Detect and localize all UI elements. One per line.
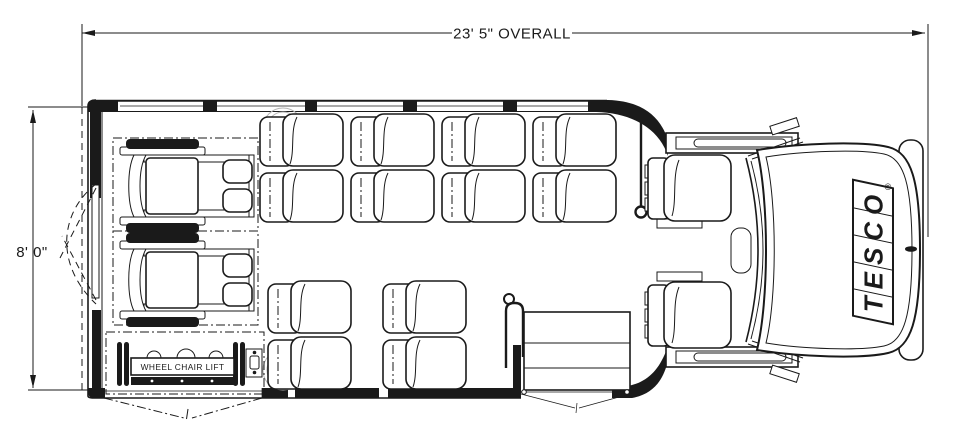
wheelchair-1 — [120, 139, 254, 233]
dimension-arrow-right — [912, 30, 925, 36]
entry-steps — [521, 312, 630, 394]
overall-length-label: 23' 5" OVERALL — [453, 26, 571, 43]
bus-floor-plan: 23' 5" OVERALL 8' 0" — [0, 0, 964, 425]
rear-door-open-panel — [92, 185, 99, 298]
driver-seat — [645, 282, 731, 348]
dimension-arrow-left — [82, 30, 95, 36]
dimension-arrow-down — [30, 375, 36, 388]
front-passenger-seat — [645, 155, 731, 221]
dimension-arrow-up — [30, 110, 36, 123]
floor-plan-drawing: 23' 5" OVERALL 8' 0" — [0, 0, 964, 425]
rear-doors — [60, 103, 101, 390]
seat-row-top-2 — [351, 114, 434, 222]
wheelchair-lift: WHEEL CHAIR LIFT — [106, 332, 264, 394]
seat-row-top-1 — [260, 114, 343, 222]
seat-pedestal-driver — [657, 272, 702, 281]
wheelchair-2 — [120, 233, 254, 327]
cab: TESCO ® — [645, 118, 923, 383]
overall-width-label: 8' 0" — [16, 244, 48, 261]
seat-row-top-3 — [442, 114, 525, 222]
registered-trademark: ® — [885, 182, 892, 192]
brand-name: TESCO — [859, 188, 889, 313]
hood — [757, 143, 920, 356]
seat-row-bottom-2 — [383, 281, 466, 389]
seat-row-top-4 — [533, 114, 616, 222]
width-dimension: 8' 0" — [16, 107, 90, 390]
center-console — [731, 228, 751, 273]
tesco-logo: TESCO ® — [853, 180, 893, 325]
wheelchair-lift-label: WHEEL CHAIR LIFT — [141, 362, 225, 372]
seat-row-bottom-1 — [268, 281, 351, 389]
lift-door-swing — [104, 398, 262, 419]
hood-latch — [905, 246, 917, 252]
